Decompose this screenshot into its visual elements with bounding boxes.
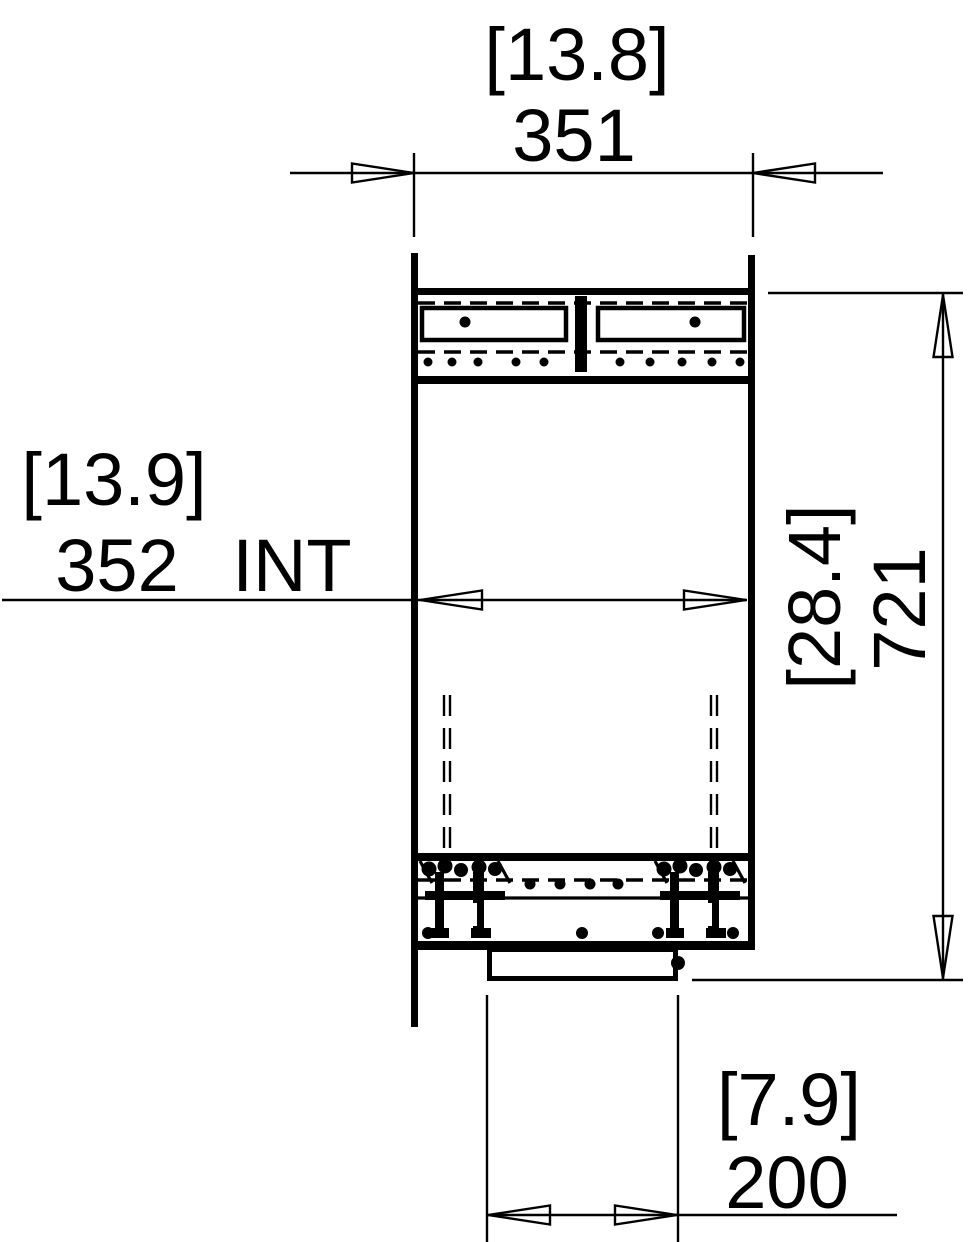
dim-top-metric: 351 bbox=[512, 94, 635, 177]
dim-int-imperial: [13.9] bbox=[21, 438, 206, 521]
band-top-edge bbox=[411, 853, 755, 861]
bottom-mounting-band bbox=[411, 853, 755, 950]
bolt-bracket-left bbox=[420, 859, 510, 939]
rivet-row-lower bbox=[422, 927, 739, 939]
top-mounting-band bbox=[411, 288, 755, 384]
band-left-panel bbox=[422, 308, 566, 340]
band-right-panel bbox=[598, 308, 744, 340]
spigot-dot bbox=[671, 956, 685, 970]
technical-drawing-canvas: [13.8] 351 [13.9] 352 INT [28.4] 721 [7.… bbox=[0, 0, 970, 1242]
dimension-internal-width: [13.9] 352 INT bbox=[2, 438, 747, 610]
dimension-overall-height: [28.4] 721 bbox=[692, 293, 963, 980]
spigot-outline bbox=[490, 950, 676, 979]
screw-dot bbox=[690, 317, 701, 328]
bolt-bracket-right bbox=[655, 859, 745, 939]
dim-int-suffix: INT bbox=[232, 524, 351, 607]
dim-outlet-imperial: [7.9] bbox=[717, 1058, 861, 1141]
dim-height-metric: 721 bbox=[858, 547, 941, 670]
outlet-spigot bbox=[490, 950, 686, 979]
dimension-outlet-width: [7.9] 200 bbox=[487, 995, 897, 1242]
center-divider-bar bbox=[575, 296, 587, 372]
screw-dot bbox=[460, 317, 471, 328]
burner-body bbox=[411, 253, 755, 1027]
band-top-edge bbox=[411, 288, 755, 295]
band-bottom-edge bbox=[411, 376, 755, 384]
hidden-interior-lines bbox=[444, 695, 717, 857]
dimension-top-width: [13.8] 351 bbox=[290, 13, 883, 237]
dim-top-imperial: [13.8] bbox=[484, 13, 669, 96]
right-wall bbox=[748, 255, 755, 948]
drawing-svg: [13.8] 351 [13.9] 352 INT [28.4] 721 [7.… bbox=[0, 0, 970, 1242]
dim-outlet-metric: 200 bbox=[725, 1141, 848, 1224]
dim-height-imperial: [28.4] bbox=[773, 504, 856, 689]
left-wall bbox=[411, 253, 418, 1027]
dim-int-metric: 352 bbox=[55, 524, 178, 607]
